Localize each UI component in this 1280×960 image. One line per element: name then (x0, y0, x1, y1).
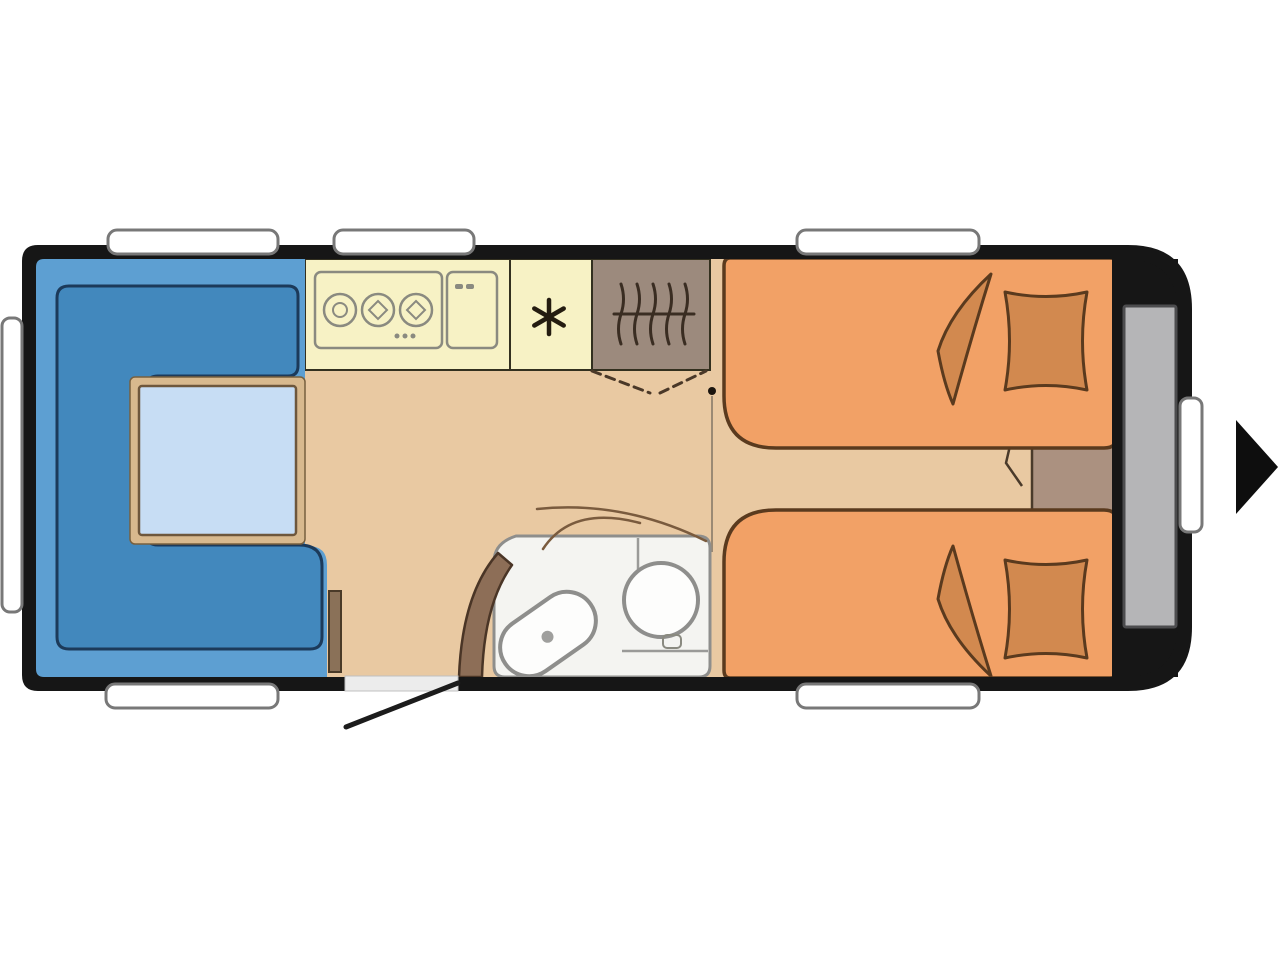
lounge-seating (36, 259, 341, 677)
window-front (2, 318, 22, 612)
hinge-dot (708, 387, 716, 395)
window-top-kitchen (334, 230, 474, 254)
pillow-icon (1005, 560, 1087, 658)
tap-mark (455, 284, 463, 289)
window-bottom-bedroom (797, 684, 979, 708)
pillow-icon (1005, 292, 1087, 390)
bed-bottom (724, 510, 1118, 678)
window-top-lounge (108, 230, 278, 254)
window-top-bedroom (797, 230, 979, 254)
window-rear (1180, 398, 1202, 532)
hob-knob (403, 334, 408, 339)
hob-knob (395, 334, 400, 339)
bed-top (724, 258, 1118, 448)
washbasin-icon (624, 563, 698, 637)
rear-storage (1124, 306, 1176, 627)
caravan-floorplan (2, 230, 1278, 727)
seat-side-trim (329, 591, 341, 672)
hob-knob (411, 334, 416, 339)
floorplan-canvas (0, 0, 1280, 960)
window-bottom-lounge (106, 684, 278, 708)
tap-mark (466, 284, 474, 289)
dinette-table (139, 386, 296, 535)
